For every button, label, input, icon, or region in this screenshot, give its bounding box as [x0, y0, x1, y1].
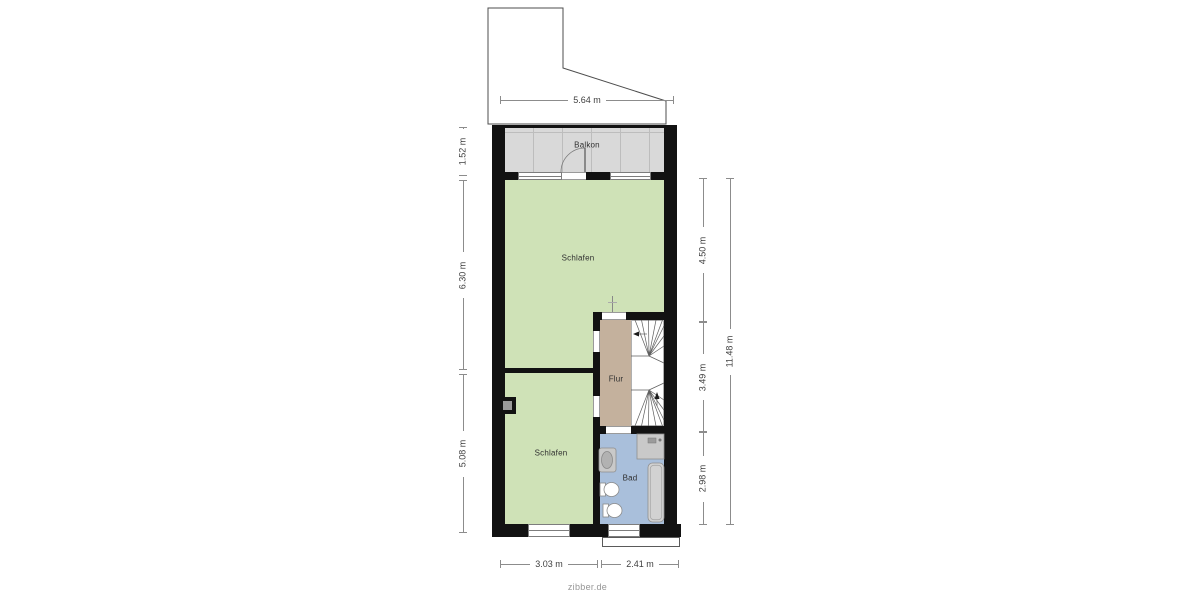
dimension-label: 11.48 m	[725, 333, 736, 371]
left-outer-wall	[492, 127, 505, 537]
dimension-lower-room-depth: 5.08 m	[457, 374, 469, 533]
toilet-icon	[603, 504, 622, 518]
dimension-label: 5.08 m	[458, 437, 469, 471]
dimension-label: 2.98 m	[698, 462, 709, 496]
room-label-balkon: Balkon	[574, 141, 600, 150]
dimension-right-middle: 3.49 m	[697, 322, 709, 432]
dimension-line	[602, 564, 621, 565]
staircase-icon	[631, 320, 664, 426]
dimension-line	[703, 179, 704, 227]
wall-segment	[593, 312, 602, 320]
room-label-bad: Bad	[623, 474, 638, 483]
dimension-label: 4.50 m	[698, 233, 709, 267]
dimension-tick	[673, 96, 674, 104]
toilet-icon	[600, 483, 619, 497]
dimension-line	[463, 375, 464, 431]
window	[610, 172, 651, 180]
dimension-labelbox: 5.08 m	[457, 431, 469, 477]
wall-segment	[505, 172, 518, 180]
dimension-tick	[699, 524, 707, 525]
dimension-label: 3.03 m	[530, 558, 568, 570]
dimension-line	[659, 564, 678, 565]
dimension-label: 1.52 m	[458, 135, 469, 169]
balcony-railing	[492, 125, 677, 128]
dimension-right-upper: 4.50 m	[697, 178, 709, 322]
dimension-label: 3.49 m	[698, 360, 709, 394]
dimension-tick	[597, 560, 598, 568]
room-label-schlafen-upper: Schlafen	[562, 254, 595, 263]
dimension-tick	[678, 560, 679, 568]
dimension-labelbox: 11.48 m	[724, 329, 736, 375]
door-tick	[608, 302, 617, 303]
counter-icon	[637, 434, 664, 459]
dimension-line	[703, 400, 704, 431]
dimension-bottom-right: 2.41 m	[601, 558, 679, 570]
dimension-labelbox: 1.52 m	[457, 129, 469, 175]
dimension-line	[730, 179, 731, 329]
dimension-labelbox: 6.30 m	[457, 252, 469, 298]
lower-level-outline	[485, 5, 670, 127]
floor-plan-canvas: 5.64 m	[0, 0, 1200, 600]
dimension-line	[568, 564, 597, 565]
room-label-flur: Flur	[609, 375, 624, 384]
dimension-labelbox: 2.98 m	[697, 456, 709, 502]
door-opening	[602, 312, 626, 320]
room-label-schlafen-lower: Schlafen	[535, 449, 568, 458]
dimension-line	[501, 564, 530, 565]
bedroom-divider-wall	[492, 368, 593, 373]
dimension-line	[703, 273, 704, 321]
dimension-line	[606, 100, 673, 101]
dimension-label: 5.64 m	[568, 94, 606, 106]
watermark: zibber.de	[540, 582, 635, 592]
dimension-label: 2.41 m	[621, 558, 659, 570]
dimension-tick	[459, 175, 467, 176]
hallway-floor	[600, 320, 631, 426]
chimney-flue	[503, 401, 512, 410]
bathtub-icon	[648, 463, 664, 522]
dimension-line	[501, 100, 568, 101]
window	[518, 172, 562, 180]
dimension-line	[703, 502, 704, 525]
dimension-line	[463, 298, 464, 369]
dimension-labelbox: 3.49 m	[697, 354, 709, 400]
dimension-tick	[459, 532, 467, 533]
dimension-line	[703, 323, 704, 354]
dimension-upper-room-depth: 6.30 m	[457, 180, 469, 370]
dimension-line	[463, 477, 464, 533]
dimension-label: 6.30 m	[458, 258, 469, 292]
dimension-tick	[726, 524, 734, 525]
dimension-balcony-depth: 1.52 m	[457, 127, 469, 176]
dimension-line	[730, 375, 731, 525]
dormer-outline	[602, 537, 680, 547]
wall-segment	[593, 320, 600, 331]
dimension-line	[703, 433, 704, 456]
dimension-labelbox: 4.50 m	[697, 227, 709, 273]
wall-segment	[626, 312, 664, 320]
dimension-top-width: 5.64 m	[500, 94, 674, 106]
sink-icon	[599, 448, 616, 472]
dimension-right-total: 11.48 m	[724, 178, 736, 525]
window	[528, 524, 570, 537]
dimension-bottom-left: 3.03 m	[500, 558, 598, 570]
dimension-tick	[459, 369, 467, 370]
wall-segment	[492, 524, 528, 537]
dimension-line	[463, 181, 464, 252]
wall-segment	[651, 172, 664, 180]
door-opening	[593, 331, 600, 352]
dimension-right-lower: 2.98 m	[697, 432, 709, 525]
door-opening	[593, 396, 600, 417]
wall-segment	[593, 352, 600, 396]
door-leaf	[612, 296, 613, 312]
